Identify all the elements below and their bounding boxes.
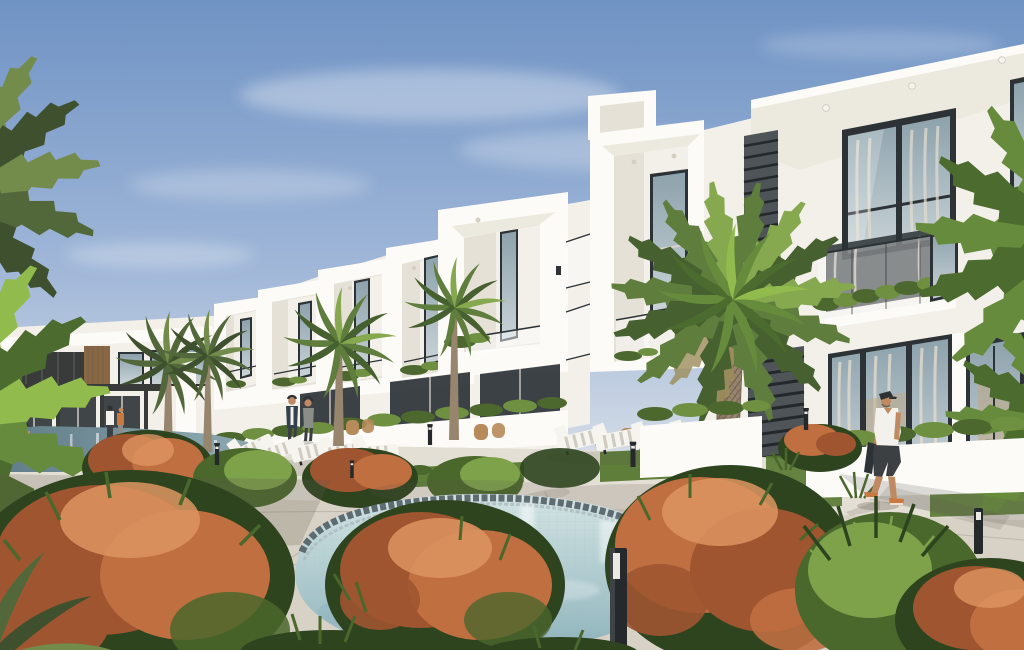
orange-bush-right-building xyxy=(778,424,862,472)
bollard-right xyxy=(974,508,983,554)
bollard-tall-led xyxy=(610,548,627,650)
architectural-rendering xyxy=(0,0,1024,650)
wall-lamp xyxy=(556,266,561,275)
scene-svg xyxy=(0,0,1024,650)
connector-balconies xyxy=(566,200,590,428)
